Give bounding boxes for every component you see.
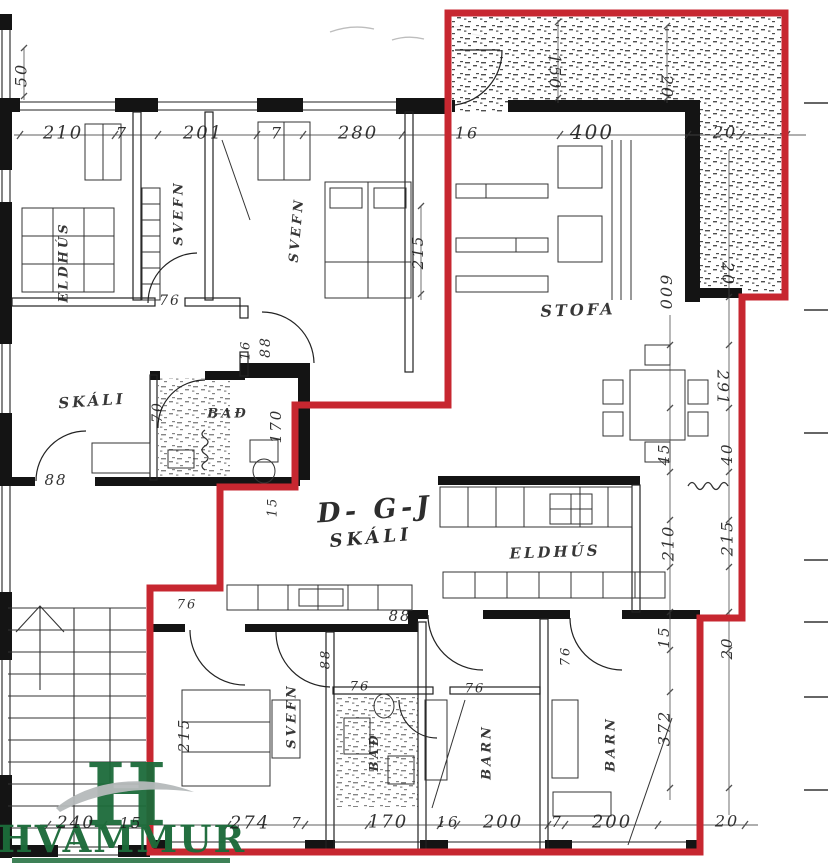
bath-bottom-hatch bbox=[336, 695, 418, 807]
logo: H HVAMMUR bbox=[0, 745, 246, 863]
edge-ticks bbox=[804, 103, 828, 790]
floorplan-drawing: H HVAMMUR bbox=[0, 0, 830, 867]
logo-tagline-bar bbox=[12, 858, 230, 863]
door-arcs bbox=[36, 50, 622, 738]
logo-wordmark: HVAMMUR bbox=[0, 817, 246, 861]
floorplan-page: H HVAMMUR ELDHÚSSVEFNSVEFNSKÁLIBAÐSTOFAE… bbox=[0, 0, 830, 867]
